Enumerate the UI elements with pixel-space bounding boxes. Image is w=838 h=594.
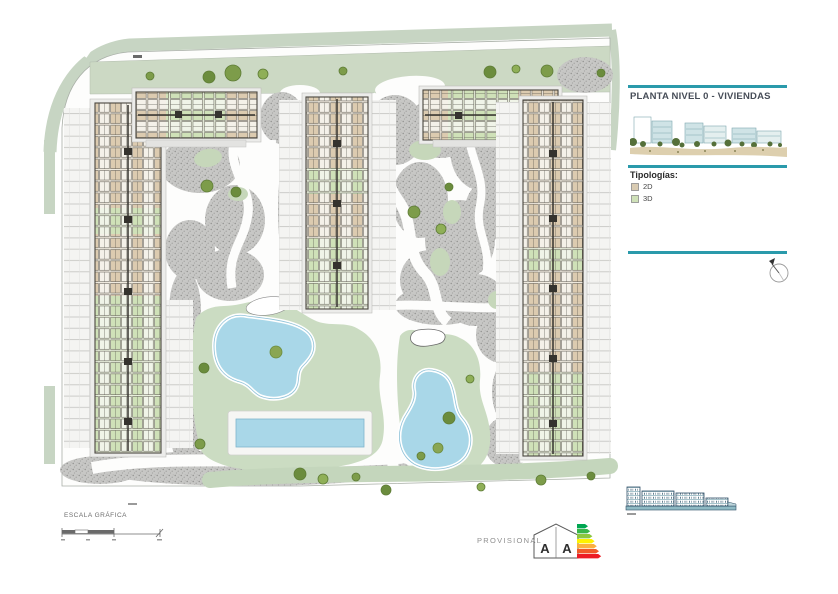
legend-swatch-2d	[631, 183, 639, 191]
building-center	[279, 93, 396, 313]
pool-lap	[228, 411, 372, 455]
divider-line	[628, 85, 787, 88]
energy-arrow	[577, 529, 590, 533]
energy-arrow	[577, 524, 588, 528]
legend-item-2d: 2D	[631, 182, 653, 191]
plan-sheet: A A PLANTA NIVEL 0 - VIVIENDAS	[0, 0, 838, 594]
project-rendering	[630, 109, 787, 160]
legend-label-2d: 2D	[643, 182, 653, 191]
building-right	[496, 96, 611, 460]
legend-label-3d: 3D	[643, 194, 653, 203]
energy-rating-logo: A A	[534, 524, 601, 558]
divider-line	[628, 165, 787, 168]
page-title: PLANTA NIVEL 0 - VIVIENDAS	[630, 91, 800, 102]
energy-arrow	[577, 539, 595, 543]
building-elevation	[626, 487, 736, 510]
energy-letter-right: A	[562, 541, 572, 556]
scale-bar	[61, 528, 163, 541]
legend-swatch-3d	[631, 195, 639, 203]
compass-icon	[769, 258, 788, 282]
energy-arrow	[577, 549, 599, 553]
provisional-label: PROVISIONAL	[477, 536, 542, 545]
energy-arrow	[577, 544, 597, 548]
typologies-heading: Tipologías:	[630, 170, 678, 180]
graphic-scale-label: ESCALA GRÁFICA	[64, 512, 127, 519]
site-plan-drawing: A A	[0, 0, 838, 594]
divider-line	[628, 251, 787, 254]
legend-item-3d: 3D	[631, 194, 653, 203]
building-top-left	[132, 88, 261, 147]
energy-arrow	[577, 534, 592, 538]
energy-arrow	[577, 554, 601, 558]
